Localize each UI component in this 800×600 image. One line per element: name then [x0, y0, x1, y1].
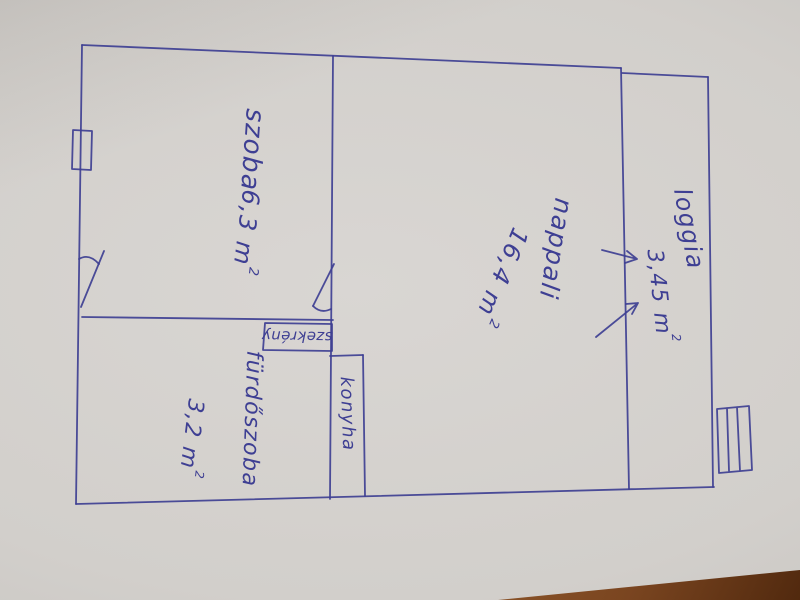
- wall-loggia-top: [622, 73, 708, 77]
- floor-plan-photo: szoba 6,3 m2 nappali 16,4 m2 loggia 3,45…: [0, 0, 800, 600]
- wall-loggia-left: [621, 68, 629, 489]
- room-label-furdoszoba: fürdőszoba: [238, 350, 265, 488]
- wall-bottom: [76, 487, 714, 504]
- door-arc-southeast: [313, 306, 331, 311]
- wall-konyha-right: [363, 355, 365, 496]
- room-label-szoba: szoba: [236, 108, 268, 193]
- loggia-arrow-lower: [596, 303, 638, 337]
- loggia-arrow-upper: [602, 250, 637, 263]
- floor-plan-sketch: [0, 0, 800, 600]
- wall-loggia-right: [708, 77, 713, 487]
- wall-szoba-bottom: [82, 317, 333, 320]
- radiator-icon: [717, 406, 752, 473]
- door-arc-southwest: [79, 257, 99, 264]
- wall-left: [76, 45, 82, 504]
- room-label-szekreny: szekrény: [261, 328, 333, 344]
- wall-top: [82, 45, 621, 68]
- window-icon: [72, 130, 92, 170]
- wall-divider-vertical: [330, 56, 333, 499]
- room-label-konyha: konyha: [337, 376, 358, 452]
- wall-konyha-top: [330, 355, 363, 356]
